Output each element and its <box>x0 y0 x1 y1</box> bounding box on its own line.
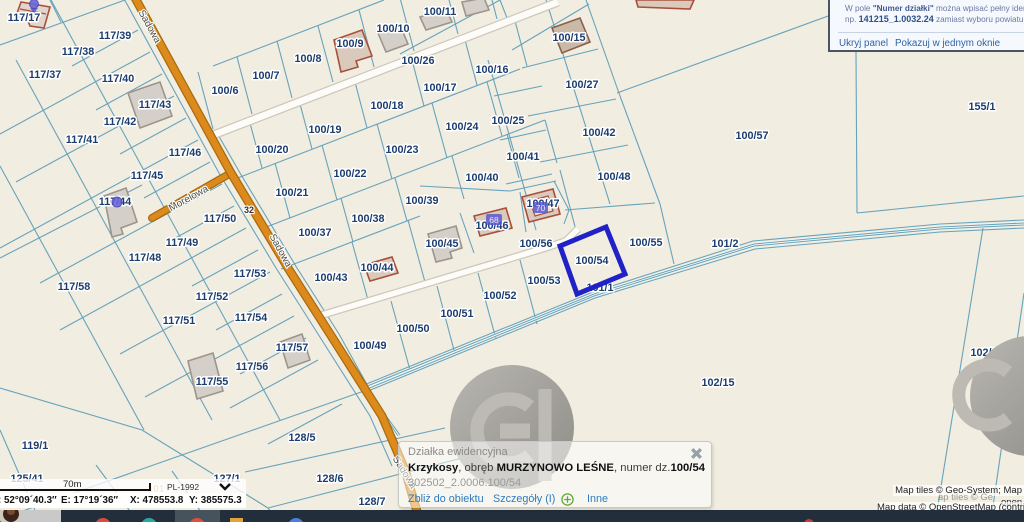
svg-text:128/5: 128/5 <box>288 432 315 444</box>
svg-text:128/6: 128/6 <box>316 473 343 485</box>
svg-text:100/11: 100/11 <box>424 6 456 18</box>
svg-text:100/39: 100/39 <box>405 195 438 207</box>
svg-text:117/49: 117/49 <box>166 237 198 249</box>
svg-text:100/20: 100/20 <box>255 144 288 156</box>
svg-text:100/48: 100/48 <box>597 171 630 183</box>
svg-text:117/41: 117/41 <box>66 134 98 146</box>
svg-text:100/15: 100/15 <box>552 32 585 44</box>
svg-text:117/40: 117/40 <box>102 73 134 85</box>
svg-text:100/50: 100/50 <box>396 323 429 335</box>
svg-text:119/1: 119/1 <box>22 440 48 452</box>
svg-text:100/23: 100/23 <box>385 144 418 156</box>
svg-text:100/42: 100/42 <box>582 127 615 139</box>
svg-text:100/54: 100/54 <box>575 255 608 267</box>
svg-text:117/43: 117/43 <box>139 99 171 111</box>
svg-text:68: 68 <box>489 215 499 225</box>
svg-text:100/18: 100/18 <box>370 100 403 112</box>
svg-text:100/38: 100/38 <box>351 213 384 225</box>
svg-text:100/25: 100/25 <box>491 115 524 127</box>
svg-text:100/19: 100/19 <box>308 124 341 136</box>
svg-text:100/53: 100/53 <box>527 275 560 287</box>
svg-text:100/17: 100/17 <box>423 82 456 94</box>
svg-text:117/55: 117/55 <box>196 376 228 388</box>
svg-text:100/22: 100/22 <box>333 168 366 180</box>
svg-text:100/40: 100/40 <box>465 172 498 184</box>
svg-text:117/42: 117/42 <box>104 116 136 128</box>
svg-text:100/52: 100/52 <box>483 290 516 302</box>
svg-text:100/7: 100/7 <box>252 70 279 82</box>
svg-text:155/1: 155/1 <box>968 101 995 113</box>
svg-text:117/48: 117/48 <box>129 252 161 264</box>
svg-text:117/53: 117/53 <box>234 268 266 280</box>
svg-text:100/21: 100/21 <box>275 187 308 199</box>
svg-text:100/51: 100/51 <box>440 308 473 320</box>
svg-text:117/17: 117/17 <box>8 12 40 24</box>
svg-text:100/8: 100/8 <box>294 53 321 65</box>
svg-text:100/26: 100/26 <box>401 55 434 67</box>
svg-text:100/49: 100/49 <box>353 340 386 352</box>
svg-text:117/38: 117/38 <box>62 46 94 58</box>
svg-text:117/37: 117/37 <box>29 69 61 81</box>
svg-text:117/54: 117/54 <box>235 312 267 324</box>
svg-text:100/9: 100/9 <box>336 38 363 50</box>
svg-text:117/45: 117/45 <box>131 170 163 182</box>
svg-text:117/52: 117/52 <box>196 291 228 303</box>
svg-text:117/56: 117/56 <box>236 361 268 373</box>
svg-text:100/41: 100/41 <box>506 151 539 163</box>
svg-text:101/2: 101/2 <box>711 238 738 250</box>
svg-text:100/6: 100/6 <box>211 85 238 97</box>
svg-text:32: 32 <box>244 205 254 215</box>
svg-text:117/58: 117/58 <box>58 281 90 293</box>
svg-text:117/50: 117/50 <box>204 213 236 225</box>
svg-text:100/37: 100/37 <box>298 227 331 239</box>
svg-text:100/57: 100/57 <box>735 130 768 142</box>
svg-text:70: 70 <box>536 203 546 213</box>
svg-text:100/43: 100/43 <box>314 272 347 284</box>
svg-text:117/57: 117/57 <box>276 342 308 354</box>
svg-text:117/46: 117/46 <box>169 147 201 159</box>
svg-text:100/44: 100/44 <box>360 262 393 274</box>
svg-text:100/56: 100/56 <box>519 238 552 250</box>
svg-text:128/7: 128/7 <box>358 496 385 508</box>
svg-text:100/16: 100/16 <box>475 64 508 76</box>
svg-text:100/45: 100/45 <box>425 238 458 250</box>
svg-text:117/39: 117/39 <box>99 30 131 42</box>
svg-text:100/24: 100/24 <box>445 121 478 133</box>
svg-text:102/15: 102/15 <box>701 377 734 389</box>
svg-text:100/55: 100/55 <box>629 237 662 249</box>
svg-text:100/27: 100/27 <box>565 79 598 91</box>
svg-text:100/10: 100/10 <box>376 23 409 35</box>
svg-text:117/51: 117/51 <box>163 315 195 327</box>
